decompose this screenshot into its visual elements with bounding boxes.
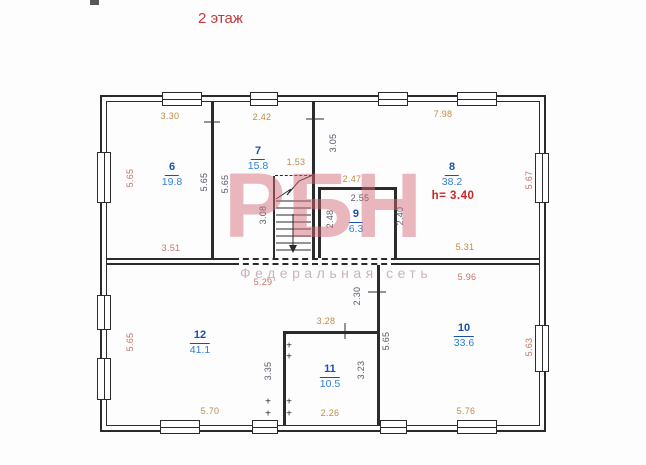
floorplan-page: 2 этаж [0, 0, 646, 465]
dim-room10-left: 5.65 [381, 332, 391, 351]
room-number: 8 [445, 161, 459, 176]
watermark-logo: РБН [224, 160, 424, 252]
dim-room12-right: 3.35 [263, 362, 273, 381]
window [97, 152, 111, 203]
dim-room8-top: 7.98 [434, 109, 453, 119]
wall-material-mark: + [286, 409, 292, 420]
dim-room12-bottom: 5.70 [201, 406, 220, 416]
dim-room10-top: 5.96 [458, 272, 477, 282]
wall-room11-top [283, 331, 380, 334]
wall-material-mark: + [286, 341, 292, 352]
wall-material-mark: + [265, 397, 271, 408]
wall-material-mark: + [286, 352, 292, 363]
dim-room6-top: 3.30 [161, 111, 180, 121]
room-area: 19.8 [162, 176, 182, 189]
window [457, 92, 497, 106]
dim-wall-segment: 2.30 [352, 287, 362, 306]
room-number: 11 [320, 363, 340, 378]
scan-artifact [90, 0, 99, 5]
watermark-tagline: Федеральная сеть [240, 265, 432, 281]
middle-wall-right [397, 258, 539, 265]
window [162, 92, 202, 106]
dim-room11-top: 3.28 [317, 316, 336, 326]
floor-title: 2 этаж [198, 10, 243, 27]
room-label-12: 12 41.1 [190, 324, 210, 357]
dim-room8-bottom: 5.31 [456, 242, 475, 252]
dim-room6-bottom: 3.51 [162, 243, 181, 253]
dim-exterior-left-lower: 5.65 [125, 333, 135, 352]
middle-wall-opening [233, 258, 397, 265]
wall-room11-room10 [377, 265, 380, 425]
dim-exterior-right-upper: 5.67 [524, 171, 534, 190]
dim-room11-bottom: 2.26 [321, 408, 340, 418]
dim-room7-top: 2.42 [253, 112, 272, 122]
room-number: 10 [454, 322, 474, 337]
room-area: 38.2 [442, 176, 462, 189]
window [380, 420, 407, 434]
wall-room6-room7 [211, 102, 214, 258]
window [250, 92, 278, 106]
room-number: 6 [165, 161, 179, 176]
window [378, 92, 408, 106]
room-label-11: 11 10.5 [320, 358, 340, 391]
wall-material-mark: + [286, 397, 292, 408]
room-area: 33.6 [454, 337, 474, 350]
window [457, 420, 497, 434]
dim-room6-right: 5.65 [199, 173, 209, 192]
window [535, 325, 549, 372]
middle-wall-left [107, 258, 233, 265]
dim-wall-7-8: 3.05 [328, 134, 338, 153]
room-label-8: 8 38.2 [442, 156, 462, 189]
room-number: 12 [190, 329, 210, 344]
room-area: 41.1 [190, 344, 210, 357]
room-area: 10.5 [320, 378, 340, 391]
dim-exterior-right-lower: 5.63 [524, 338, 534, 357]
wall-material-mark: + [265, 409, 271, 420]
window [252, 420, 278, 434]
window [97, 295, 111, 330]
room-label-10: 10 33.6 [454, 317, 474, 350]
room-label-6: 6 19.8 [162, 156, 182, 189]
window [97, 358, 111, 400]
window [160, 420, 200, 434]
dim-room10-bottom: 5.76 [457, 406, 476, 416]
ceiling-height-note: h= 3.40 [432, 190, 475, 202]
dim-room11-right: 3.23 [356, 361, 366, 380]
dim-exterior-left-upper: 5.65 [125, 169, 135, 188]
window [535, 153, 549, 203]
